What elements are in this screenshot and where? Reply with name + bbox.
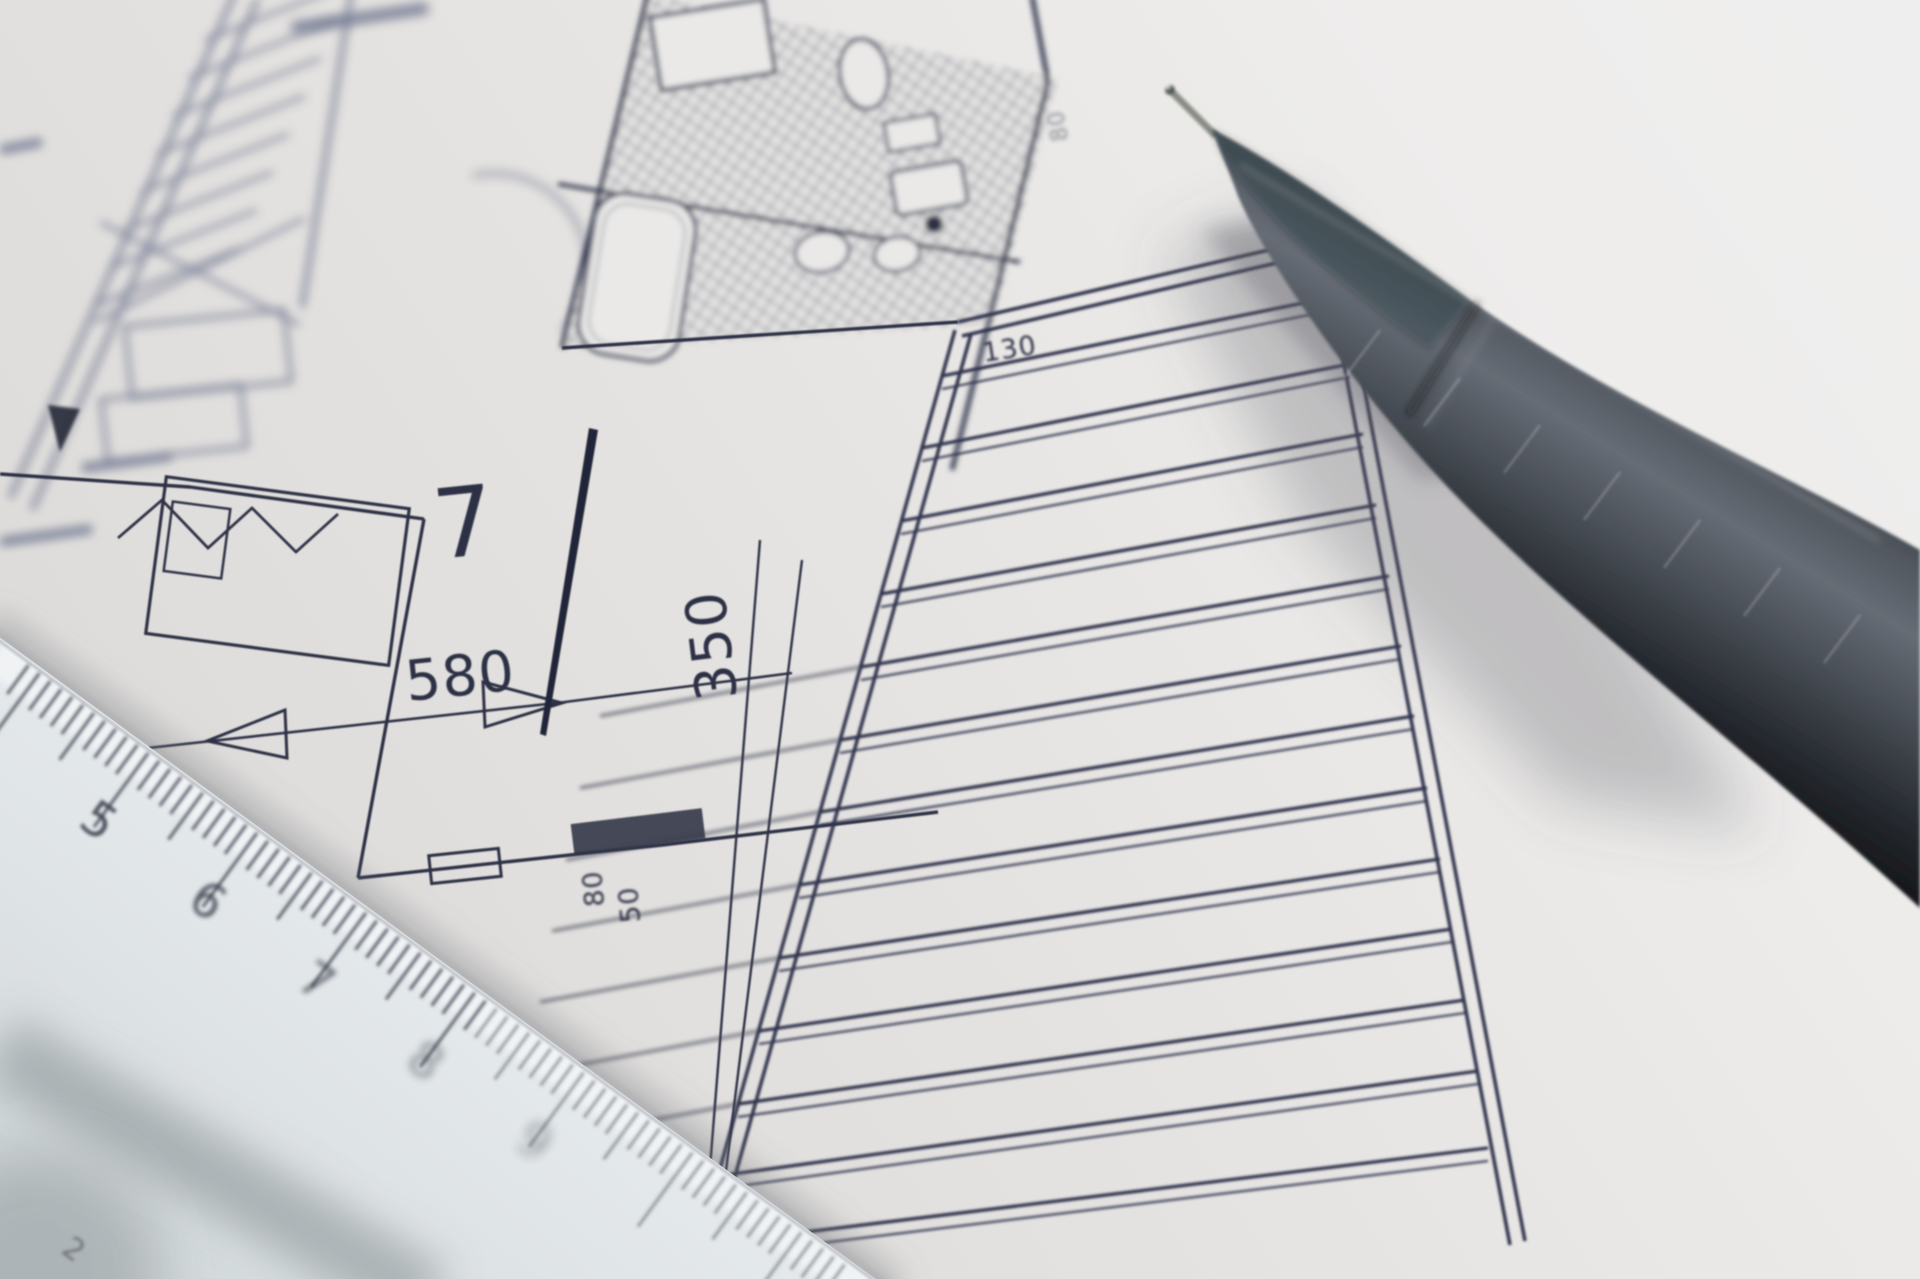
room-number-label: 7 xyxy=(428,464,501,582)
drain-mark xyxy=(925,215,943,233)
pen-needle-glint xyxy=(1166,85,1170,89)
dim-50-label: 50 xyxy=(613,885,647,924)
dim-580-label: 580 xyxy=(402,639,518,715)
dim-margin-80-label: 80 xyxy=(1043,108,1074,143)
dim-350-label: 350 xyxy=(673,587,751,704)
dim-80-label: 80 xyxy=(577,869,611,908)
photo-architectural-plan: 7 580 350 80 50 130 80 5 6 7 8 9 2 xyxy=(0,0,1920,1279)
shower-tray xyxy=(650,0,775,90)
scene-canvas: 7 580 350 80 50 130 80 5 6 7 8 9 2 xyxy=(0,0,1920,1279)
